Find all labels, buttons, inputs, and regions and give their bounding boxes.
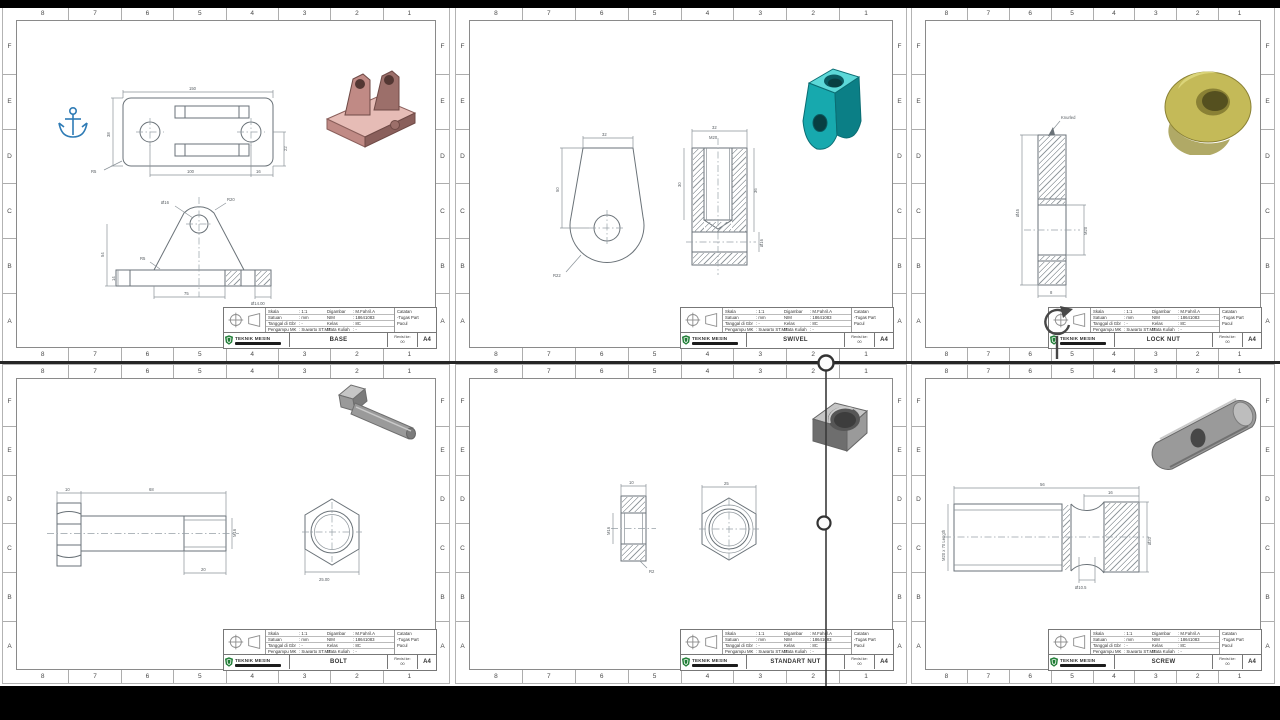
- drawing-frame: [16, 20, 436, 348]
- zone-label: E: [3, 426, 16, 475]
- zone-label: C: [1261, 523, 1274, 572]
- zone-label: 5: [1051, 7, 1093, 20]
- field-label: Mata Kuliah: [1150, 327, 1176, 332]
- zone-label: 7: [522, 348, 575, 361]
- zone-label: 1: [383, 348, 435, 361]
- zone-label: 1: [839, 670, 892, 683]
- zone-label: C: [893, 183, 906, 238]
- zone-label: A: [893, 293, 906, 348]
- title-block-fields: Skala : 1:1 Digambar : M.Fahril.A Satuan…: [224, 630, 436, 655]
- zone-label: B: [1261, 238, 1274, 293]
- notes-label: Catatan: [1222, 309, 1259, 314]
- zone-label: 4: [226, 670, 278, 683]
- notes-line: Pacul: [854, 643, 891, 648]
- zone-ruler-bottom: 87654321: [17, 348, 435, 361]
- field-label: Skala: [723, 309, 754, 314]
- zone-label: 7: [967, 348, 1009, 361]
- notes-line: -Tugas Part: [1222, 315, 1259, 320]
- field-value: : 1:1: [1122, 631, 1150, 636]
- zone-label: 3: [278, 7, 330, 20]
- zone-label: E: [893, 426, 906, 475]
- field-label: Mata Kuliah: [1150, 649, 1176, 654]
- zone-label: 4: [1093, 348, 1135, 361]
- zone-ruler-bottom: 87654321: [470, 670, 892, 683]
- zone-label: 2: [786, 7, 839, 20]
- zone-label: 2: [1176, 670, 1218, 683]
- zone-label: B: [436, 238, 449, 293]
- logo-banner: [692, 342, 738, 345]
- zone-label: E: [436, 426, 449, 475]
- zone-label: A: [456, 293, 469, 348]
- paper-size: A4: [1243, 655, 1261, 669]
- field-value: : -: [1176, 327, 1219, 332]
- zone-ruler-bottom: 87654321: [926, 348, 1260, 361]
- title-block-footer: TEKNIK MESIN SCREW Revisi ke: 00 A4: [1049, 655, 1261, 669]
- zone-ruler-bottom: 87654321: [17, 670, 435, 683]
- zone-label: F: [893, 20, 906, 74]
- projection-symbol-icon: [226, 631, 264, 653]
- notes-line: -Tugas Part: [1222, 637, 1259, 642]
- zone-label: C: [456, 183, 469, 238]
- zone-label: A: [912, 621, 925, 670]
- selection-handle[interactable]: [818, 517, 831, 530]
- zone-label: 7: [68, 670, 120, 683]
- zone-label: D: [1261, 129, 1274, 184]
- zone-label: B: [912, 572, 925, 621]
- logo-banner: [692, 664, 738, 667]
- notes-label: Catatan: [854, 631, 891, 636]
- zone-label: C: [436, 183, 449, 238]
- zone-ruler-left: FEDCBA: [456, 20, 469, 348]
- part-title: STANDART NUT: [747, 655, 845, 669]
- zone-label: D: [3, 129, 16, 184]
- revision-cell: Revisi ke: 00: [1213, 333, 1243, 347]
- field-label: Mata Kuliah: [782, 649, 808, 654]
- sheet-standart-nut: 10 M16 R2 25 87654321 87654: [455, 364, 907, 684]
- zone-label: 2: [1176, 7, 1218, 20]
- zone-label: 3: [733, 670, 786, 683]
- zone-ruler-top: 87654321: [470, 7, 892, 20]
- projection-symbol: [681, 308, 723, 332]
- zone-label: C: [893, 523, 906, 572]
- zone-label: 6: [1009, 365, 1051, 378]
- title-block-footer: TEKNIK MESIN LOCK NUT Revisi ke: 00 A4: [1049, 333, 1261, 347]
- zone-label: A: [456, 621, 469, 670]
- projection-symbol-icon: [1051, 309, 1089, 331]
- notes-line: -Tugas Part: [397, 315, 434, 320]
- field-value: : 1:1: [297, 309, 325, 314]
- zone-ruler-left: FEDCBA: [912, 378, 925, 670]
- zone-label: F: [893, 378, 906, 426]
- zone-label: 7: [522, 670, 575, 683]
- zone-label: 1: [1218, 7, 1260, 20]
- zone-label: B: [436, 572, 449, 621]
- zone-label: 8: [926, 365, 967, 378]
- title-block-footer: TEKNIK MESIN SWIVEL Revisi ke: 00 A4: [681, 333, 893, 347]
- zone-label: 2: [330, 7, 382, 20]
- zone-label: 6: [1009, 670, 1051, 683]
- zone-label: 5: [173, 670, 225, 683]
- zone-label: 3: [278, 365, 330, 378]
- zone-label: E: [436, 74, 449, 129]
- notes-line: Pacul: [397, 643, 434, 648]
- zone-label: 2: [1176, 348, 1218, 361]
- zone-label: E: [456, 74, 469, 129]
- projection-symbol-icon: [1051, 631, 1089, 653]
- title-block: Skala : 1:1 Digambar : M.Fahril.A Satuan…: [223, 629, 437, 671]
- notes-label: Catatan: [1222, 631, 1259, 636]
- notes-line: -Tugas Part: [854, 637, 891, 642]
- zone-label: F: [436, 378, 449, 426]
- zone-ruler-right: FEDCBA: [893, 378, 906, 670]
- zone-label: 4: [681, 670, 734, 683]
- zone-label: 6: [121, 7, 173, 20]
- projection-symbol: [681, 630, 723, 654]
- notes-line: -Tugas Part: [397, 637, 434, 642]
- zone-label: A: [912, 293, 925, 348]
- field-label: Mata Kuliah: [325, 649, 351, 654]
- zone-label: 8: [926, 348, 967, 361]
- zone-label: 3: [733, 7, 786, 20]
- zone-label: C: [456, 523, 469, 572]
- zone-label: 5: [628, 7, 681, 20]
- zone-label: B: [1261, 572, 1274, 621]
- part-title: SCREW: [1115, 655, 1213, 669]
- zone-label: 7: [68, 348, 120, 361]
- field-label: Digambar: [782, 631, 808, 636]
- zone-ruler-left: FEDCBA: [456, 378, 469, 670]
- zone-label: D: [436, 129, 449, 184]
- zone-ruler-top: 87654321: [17, 365, 435, 378]
- zone-label: 7: [967, 7, 1009, 20]
- zone-label: D: [456, 475, 469, 524]
- zone-label: 8: [470, 670, 522, 683]
- zone-label: 3: [733, 365, 786, 378]
- zone-ruler-top: 87654321: [17, 7, 435, 20]
- zone-label: B: [456, 238, 469, 293]
- zone-label: C: [436, 523, 449, 572]
- zone-ruler-top: 87654321: [926, 365, 1260, 378]
- zone-ruler-top: 87654321: [926, 7, 1260, 20]
- zone-label: 4: [681, 365, 734, 378]
- title-block: Skala : 1:1 Digambar : M.Fahril.A Satuan…: [223, 307, 437, 349]
- teknik-mesin-logo: TEKNIK MESIN: [681, 333, 747, 347]
- zone-label: 6: [121, 348, 173, 361]
- notes-line: Pacul: [1222, 321, 1259, 326]
- zone-label: 6: [1009, 348, 1051, 361]
- zone-label: C: [3, 183, 16, 238]
- zone-label: D: [456, 129, 469, 184]
- revision-cell: Revisi ke: 00: [388, 333, 418, 347]
- field-value: : Suwarto ST.MT: [754, 327, 782, 332]
- drawing-frame: [16, 378, 436, 670]
- zone-label: 6: [575, 365, 628, 378]
- video-frame: 150 38 100 16 22 R5: [0, 0, 1280, 720]
- zone-label: 5: [628, 348, 681, 361]
- zone-label: A: [893, 621, 906, 670]
- field-value: : 1:1: [754, 631, 782, 636]
- sheet-swivel: 32 50 R22 32 M20 30 36: [455, 6, 907, 362]
- logo-banner: [1060, 342, 1106, 345]
- revision-value: 00: [1213, 340, 1242, 345]
- title-block: Skala : 1:1 Digambar : M.Fahril.A Satuan…: [1048, 307, 1262, 349]
- logo-banner: [1060, 664, 1106, 667]
- field-value: : 1:1: [1122, 309, 1150, 314]
- zone-label: D: [912, 129, 925, 184]
- selection-handle[interactable]: [819, 356, 834, 371]
- zone-ruler-right: FEDCBA: [893, 20, 906, 348]
- field-value: : Suwarto ST.MT: [297, 649, 325, 654]
- notes-cell: Catatan -Tugas Part Pacul: [851, 308, 893, 332]
- zone-label: 2: [330, 348, 382, 361]
- row-divider: [0, 361, 1280, 364]
- zone-label: F: [436, 20, 449, 74]
- zone-label: 1: [1218, 348, 1260, 361]
- field-label: Digambar: [782, 309, 808, 314]
- zone-label: 4: [226, 365, 278, 378]
- zone-label: A: [3, 621, 16, 670]
- zone-label: 7: [68, 365, 120, 378]
- letterbox-bottom: [0, 686, 1280, 720]
- notes-line: Pacul: [1222, 643, 1259, 648]
- zone-ruler-right: FEDCBA: [1261, 378, 1274, 670]
- title-block-fields: Skala : 1:1 Digambar : M.Fahril.A Satuan…: [224, 308, 436, 333]
- zone-ruler-right: FEDCBA: [436, 20, 449, 348]
- field-label: Skala: [266, 309, 297, 314]
- teknik-mesin-logo: TEKNIK MESIN: [224, 333, 290, 347]
- projection-symbol-icon: [683, 631, 721, 653]
- zone-label: E: [3, 74, 16, 129]
- zone-label: F: [3, 20, 16, 74]
- field-value: : Suwarto ST.MT: [1122, 327, 1150, 332]
- zone-label: 5: [1051, 670, 1093, 683]
- notes-cell: Catatan -Tugas Part Pacul: [394, 308, 436, 332]
- zone-label: 1: [1218, 365, 1260, 378]
- zone-label: 1: [1218, 670, 1260, 683]
- zone-label: C: [912, 523, 925, 572]
- notes-cell: Catatan -Tugas Part Pacul: [1219, 630, 1261, 654]
- zone-label: 4: [1093, 7, 1135, 20]
- field-label: Pengampu MK: [1091, 327, 1122, 332]
- paper-size: A4: [418, 333, 436, 347]
- zone-label: E: [912, 74, 925, 129]
- zone-label: 6: [575, 670, 628, 683]
- zone-label: F: [456, 20, 469, 74]
- zone-label: 8: [926, 670, 967, 683]
- field-label: Digambar: [325, 309, 351, 314]
- zone-label: 5: [628, 670, 681, 683]
- zone-label: 5: [628, 365, 681, 378]
- notes-label: Catatan: [854, 309, 891, 314]
- field-value: : Suwarto ST.MT: [754, 649, 782, 654]
- paper-size: A4: [418, 655, 436, 669]
- title-block-footer: TEKNIK MESIN BOLT Revisi ke: 00 A4: [224, 655, 436, 669]
- part-title: BOLT: [290, 655, 388, 669]
- notes-cell: Catatan -Tugas Part Pacul: [1219, 308, 1261, 332]
- zone-label: B: [3, 572, 16, 621]
- zone-label: 4: [681, 348, 734, 361]
- field-value: : M.Fahril.A: [1176, 309, 1219, 314]
- teknik-mesin-logo: TEKNIK MESIN: [224, 655, 290, 669]
- revision-value: 00: [388, 662, 417, 667]
- zone-label: D: [1261, 475, 1274, 524]
- zone-label: A: [1261, 293, 1274, 348]
- notes-line: Pacul: [854, 321, 891, 326]
- zone-label: F: [456, 378, 469, 426]
- sheet-screw: 56 16 M20 x 70 Length Ø10.5 Ø20 87654321…: [911, 364, 1275, 684]
- zone-label: A: [3, 293, 16, 348]
- field-label: Skala: [723, 631, 754, 636]
- shield-icon: [682, 657, 690, 667]
- part-title: LOCK NUT: [1115, 333, 1213, 347]
- zone-label: 5: [173, 365, 225, 378]
- zone-label: 8: [470, 365, 522, 378]
- zone-label: F: [912, 20, 925, 74]
- zone-label: E: [912, 426, 925, 475]
- field-label: Mata Kuliah: [782, 327, 808, 332]
- zone-label: 7: [967, 365, 1009, 378]
- field-label: Pengampu MK: [266, 327, 297, 332]
- field-label: Pengampu MK: [266, 649, 297, 654]
- zone-label: 5: [173, 7, 225, 20]
- projection-symbol-icon: [683, 309, 721, 331]
- zone-label: 7: [522, 7, 575, 20]
- zone-ruler-left: FEDCBA: [3, 20, 16, 348]
- zone-label: 3: [733, 348, 786, 361]
- zone-label: B: [893, 238, 906, 293]
- zone-label: A: [436, 621, 449, 670]
- zone-label: 3: [278, 670, 330, 683]
- shield-icon: [1050, 657, 1058, 667]
- field-label: Pengampu MK: [723, 649, 754, 654]
- field-value: : M.Fahril.A: [351, 309, 394, 314]
- dept-name: TEKNIK MESIN: [692, 658, 738, 663]
- zone-label: B: [912, 238, 925, 293]
- field-value: : -: [1176, 649, 1219, 654]
- logo-banner: [235, 342, 281, 345]
- zone-label: D: [893, 475, 906, 524]
- zone-label: 3: [1134, 670, 1176, 683]
- shield-icon: [682, 335, 690, 345]
- projection-symbol: [224, 630, 266, 654]
- revision-value: 00: [845, 662, 874, 667]
- zone-label: C: [3, 523, 16, 572]
- zone-label: 7: [522, 365, 575, 378]
- field-value: : Suwarto ST.MT: [1122, 649, 1150, 654]
- zone-label: E: [456, 426, 469, 475]
- zone-label: 8: [17, 348, 68, 361]
- zone-ruler-right: FEDCBA: [1261, 20, 1274, 348]
- zone-label: 3: [1134, 7, 1176, 20]
- drawing-frame: [925, 378, 1261, 670]
- field-value: : M.Fahril.A: [351, 631, 394, 636]
- revision-value: 00: [1213, 662, 1242, 667]
- letterbox-top: [0, 0, 1280, 8]
- notes-label: Catatan: [397, 631, 434, 636]
- zone-label: 1: [839, 365, 892, 378]
- field-label: Skala: [1091, 309, 1122, 314]
- zone-label: 1: [839, 7, 892, 20]
- zone-label: 6: [575, 348, 628, 361]
- notes-cell: Catatan -Tugas Part Pacul: [851, 630, 893, 654]
- zone-label: D: [893, 129, 906, 184]
- revision-cell: Revisi ke: 00: [1213, 655, 1243, 669]
- zone-label: 1: [383, 670, 435, 683]
- field-value: : M.Fahril.A: [808, 309, 851, 314]
- zone-label: B: [3, 238, 16, 293]
- zone-label: 8: [926, 7, 967, 20]
- zone-label: D: [3, 475, 16, 524]
- dept-name: TEKNIK MESIN: [235, 658, 281, 663]
- zone-ruler-left: FEDCBA: [912, 20, 925, 348]
- notes-cell: Catatan -Tugas Part Pacul: [394, 630, 436, 654]
- zone-label: 4: [226, 7, 278, 20]
- zone-label: E: [1261, 74, 1274, 129]
- revision-cell: Revisi ke: 00: [845, 655, 875, 669]
- title-block-footer: TEKNIK MESIN BASE Revisi ke: 00 A4: [224, 333, 436, 347]
- zone-label: 6: [121, 365, 173, 378]
- zone-label: A: [1261, 621, 1274, 670]
- zone-label: 3: [1134, 365, 1176, 378]
- zone-label: C: [1261, 183, 1274, 238]
- revision-cell: Revisi ke: 00: [388, 655, 418, 669]
- field-label: Pengampu MK: [723, 327, 754, 332]
- zone-label: 8: [17, 670, 68, 683]
- paper-size: A4: [875, 655, 893, 669]
- zone-label: 1: [383, 7, 435, 20]
- notes-label: Catatan: [397, 309, 434, 314]
- dept-name: TEKNIK MESIN: [692, 336, 738, 341]
- zone-label: E: [1261, 426, 1274, 475]
- zone-label: 5: [173, 348, 225, 361]
- zone-label: 3: [278, 348, 330, 361]
- zone-label: F: [912, 378, 925, 426]
- zone-label: B: [456, 572, 469, 621]
- zone-label: F: [1261, 378, 1274, 426]
- zone-label: C: [912, 183, 925, 238]
- zone-ruler-right: FEDCBA: [436, 378, 449, 670]
- part-title: SWIVEL: [747, 333, 845, 347]
- zone-label: 1: [383, 365, 435, 378]
- field-label: Skala: [266, 631, 297, 636]
- projection-symbol-icon: [226, 309, 264, 331]
- zone-ruler-bottom: 87654321: [926, 670, 1260, 683]
- zone-label: F: [3, 378, 16, 426]
- title-block-footer: TEKNIK MESIN STANDART NUT Revisi ke: 00 …: [681, 655, 893, 669]
- zone-label: 6: [1009, 7, 1051, 20]
- field-value: : -: [351, 649, 394, 654]
- revision-cell: Revisi ke: 00: [845, 333, 875, 347]
- zone-label: D: [436, 475, 449, 524]
- zone-label: 7: [68, 7, 120, 20]
- sheet-lock-nut: Knurled Ø45 M20 8 87654321 87654321 FEDC…: [911, 6, 1275, 362]
- notes-line: Pacul: [397, 321, 434, 326]
- zone-label: 8: [470, 7, 522, 20]
- field-value: : 1:1: [754, 309, 782, 314]
- zone-label: 8: [470, 348, 522, 361]
- paper-size: A4: [1243, 333, 1261, 347]
- zone-label: 2: [1176, 365, 1218, 378]
- zone-label: 4: [1093, 670, 1135, 683]
- dept-name: TEKNIK MESIN: [235, 336, 281, 341]
- revision-value: 00: [388, 340, 417, 345]
- field-label: Digambar: [1150, 631, 1176, 636]
- zone-label: F: [1261, 20, 1274, 74]
- field-value: : -: [351, 327, 394, 332]
- zone-label: 6: [575, 7, 628, 20]
- title-block-fields: Skala : 1:1 Digambar : M.Fahril.A Satuan…: [681, 630, 893, 655]
- field-label: Pengampu MK: [1091, 649, 1122, 654]
